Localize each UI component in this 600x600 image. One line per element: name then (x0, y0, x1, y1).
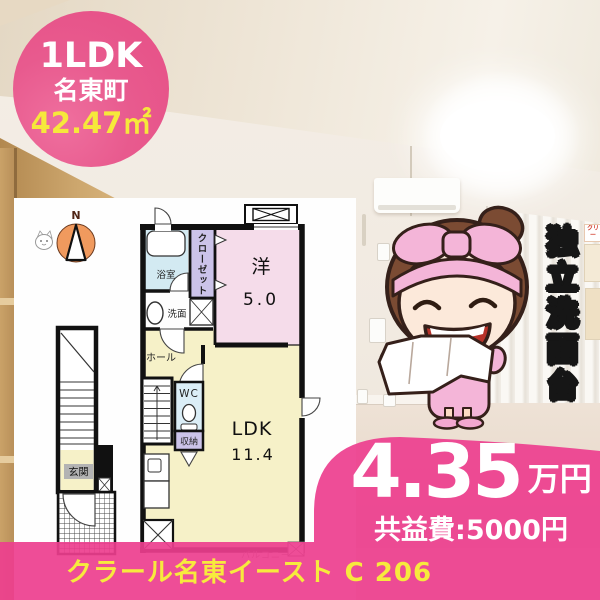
entrance-label: 玄関 (69, 466, 89, 479)
top-door-arc (155, 208, 171, 224)
room-western-fill (215, 227, 302, 345)
washer-box-icon (143, 520, 173, 550)
storage-room: 収納 (175, 431, 203, 450)
rent-amount: 4.35 (350, 438, 521, 506)
floorplan-drawing: N 玄関 (14, 198, 356, 600)
mascot-slipper (457, 418, 483, 429)
compass-north-label: N (71, 209, 80, 222)
storage-label: 収納 (180, 436, 198, 448)
wall-poster (584, 244, 600, 282)
washer-space-icon (190, 299, 213, 325)
window-gap (254, 224, 298, 230)
shelf-board (0, 298, 14, 305)
western-room-size: 5.0 (243, 290, 279, 310)
bath-label: 浴室 (156, 269, 175, 281)
feature-banner-text: 独立洗面台 (543, 225, 574, 405)
toilet-icon (183, 405, 196, 422)
floorplan-card: N 玄関 (14, 198, 356, 600)
price-block: 4.35 万円 共益費:5000円 (345, 438, 597, 547)
bathtub-icon (147, 231, 185, 256)
kitchen-counter-icon (144, 454, 169, 508)
mascot-bow-knot (443, 232, 470, 257)
closet-label: クローゼット (196, 233, 206, 296)
listing-ad: クリー N (0, 0, 600, 600)
badge-layout: 1LDK (40, 37, 143, 76)
hall-label: ホール (146, 352, 176, 364)
wall-poster: クリー (584, 224, 600, 242)
wall-outlet (357, 389, 368, 404)
rent-unit: 万円 (528, 454, 592, 506)
cat-doodle-icon (36, 231, 53, 250)
ldk-size: 11.4 (231, 445, 275, 464)
common-fee: 共益費:5000円 (374, 508, 568, 547)
rent-row: 4.35 万円 (350, 438, 592, 506)
sink-icon (147, 302, 163, 324)
compass: N (36, 209, 96, 262)
mascot-character (373, 186, 535, 438)
wc-label: WC (179, 388, 199, 400)
ac-pipe (362, 214, 366, 246)
property-name: クラール名東イースト C 206 (6, 552, 492, 589)
washroom-label: 洗面 (167, 308, 186, 320)
ldk-label: LDK (232, 418, 273, 440)
roof-box-icon (245, 205, 297, 224)
property-badge: 1LDK 名東町 42.47㎡ (13, 11, 169, 167)
wall-poster-label: クリー (587, 225, 599, 239)
ldk-right-door-arc (302, 398, 320, 416)
wall-poster (585, 288, 600, 340)
wc-room: WC (175, 382, 203, 431)
badge-area: 42.47㎡ (31, 106, 152, 141)
shelf-board (0, 456, 14, 463)
ceiling-light (440, 100, 555, 172)
entrance-stairs-block: 玄関 (58, 328, 115, 554)
badge-town: 名東町 (53, 75, 128, 106)
western-room-label: 洋 (251, 256, 270, 278)
internal-stairs (142, 378, 172, 444)
